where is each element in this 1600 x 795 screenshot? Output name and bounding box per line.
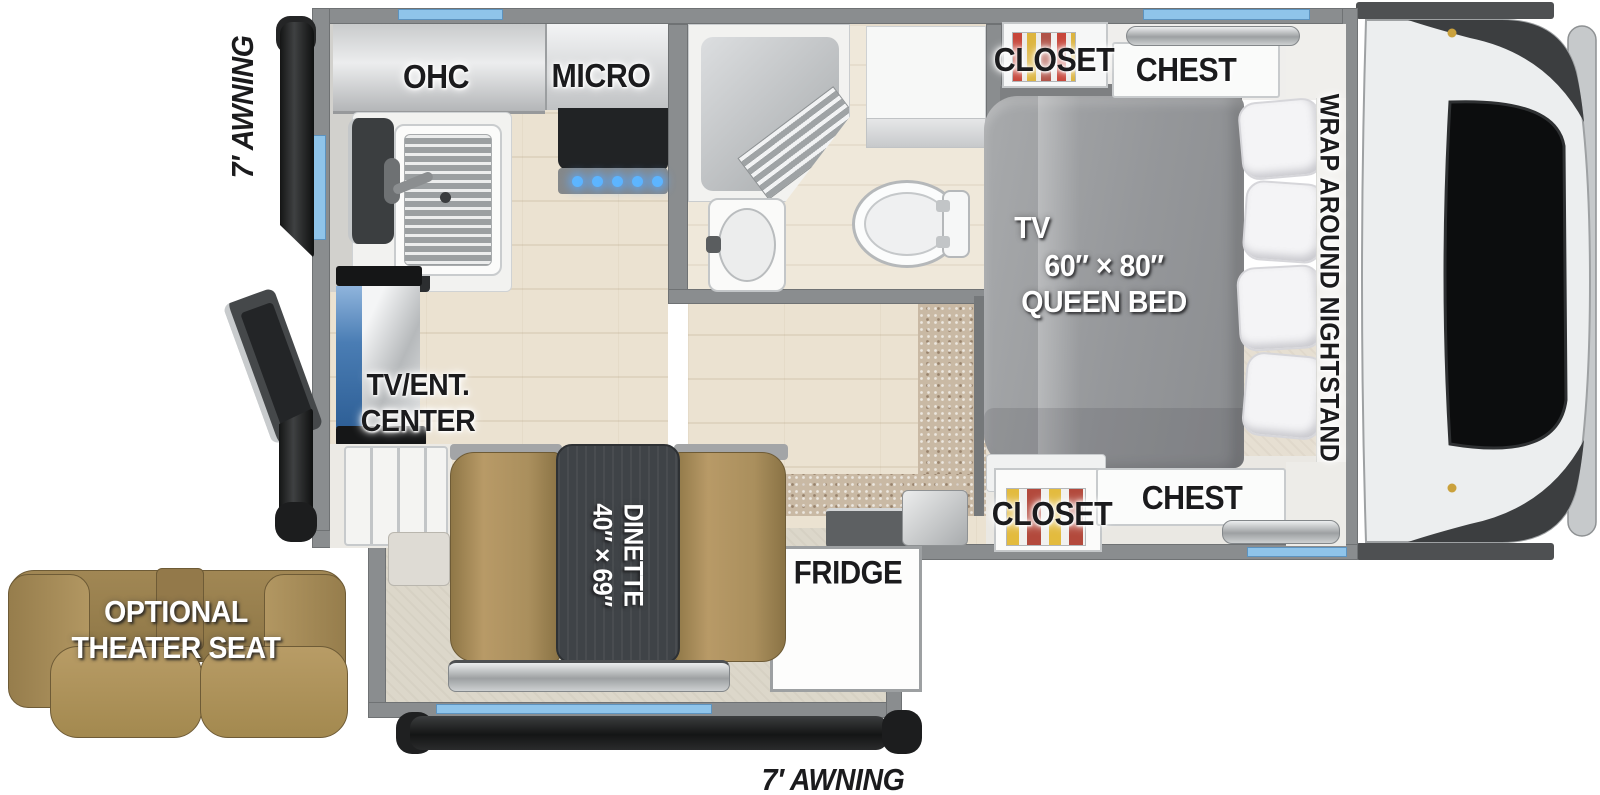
awning-bottom-label: 7′ AWNING	[762, 762, 905, 795]
awning-left-label: 7′ AWNING	[225, 36, 261, 179]
closet-bottom-label: CLOSET	[992, 495, 1112, 533]
dinette-step	[448, 660, 730, 692]
window-top-kitchen	[398, 9, 503, 20]
awning-left-roller-upper	[280, 22, 314, 258]
tv-ent-top-bar	[336, 266, 422, 286]
window-left-kitchen	[313, 135, 326, 240]
micro-label: MICRO	[552, 57, 651, 95]
queen-bed-label: 60″ × 80″ QUEEN BED	[1021, 248, 1186, 320]
sink-faucet	[384, 158, 400, 204]
truck-cab	[1352, 0, 1600, 562]
truck-bed-rail-top	[1356, 2, 1554, 19]
bathroom-cabinet	[866, 26, 986, 120]
chest-top-label: CHEST	[1136, 51, 1237, 89]
tv-ent-center-label: TV/ENT. CENTER	[361, 367, 475, 439]
bathroom-cabinet-front	[866, 118, 986, 148]
floorplan-canvas: 7′ AWNING OHC MICRO CLOSET CHEST WRAP AR…	[0, 0, 1600, 795]
entry-step-lower	[902, 490, 968, 546]
theater-line1: OPTIONAL	[72, 594, 281, 630]
grab-bar-top	[1126, 26, 1300, 46]
tv-ent-line1: TV/ENT.	[361, 367, 475, 403]
bathroom-sink-faucet	[706, 236, 721, 253]
grab-bar-bottom	[1222, 520, 1340, 544]
awning-bottom-cap-right	[882, 710, 922, 754]
wall-bath-left	[668, 24, 688, 304]
dinette-name: DINETTE	[617, 503, 648, 606]
awning-bottom-roller	[410, 716, 888, 750]
queen-bed-size: 60″ × 80″	[1021, 248, 1186, 284]
tv-ent-screen	[336, 286, 362, 428]
burner-light-2	[592, 176, 603, 187]
dinette-bench-left	[450, 452, 560, 662]
bed-platform-edge	[974, 296, 984, 516]
entry-door-glass	[436, 704, 712, 714]
bathroom-sink-basin	[718, 208, 776, 282]
theater-line2: THEATER SEAT	[72, 630, 281, 666]
closet-top-label: CLOSET	[994, 41, 1114, 79]
burner-light-1	[572, 176, 583, 187]
dinette-size: 40″ × 69″	[586, 503, 617, 606]
dinette-label: DINETTE 40″ × 69″	[586, 503, 649, 606]
sink-drain	[440, 192, 451, 203]
burner-light-5	[652, 176, 663, 187]
wall-left	[312, 8, 330, 548]
ohc-label: OHC	[403, 58, 469, 96]
awning-left-cap-bottom	[275, 502, 317, 542]
truck-windshield	[1445, 102, 1566, 448]
queen-bed-name: QUEEN BED	[1021, 284, 1186, 320]
theater-seat-label: OPTIONAL THEATER SEAT	[72, 594, 281, 666]
fridge-label: FRIDGE	[794, 555, 902, 592]
range-stove	[558, 108, 668, 170]
toilet-hinge-top	[936, 200, 950, 212]
chest-bottom-label: CHEST	[1142, 479, 1243, 517]
tv-cabinet-drawers	[344, 446, 448, 546]
truck-marker-light-top	[1448, 29, 1457, 38]
nightstand-label: WRAP AROUND NIGHTSTAND	[1314, 94, 1345, 462]
wall-dinette-left	[368, 528, 386, 718]
toilet-hinge-bottom	[936, 236, 950, 248]
truck-marker-light-bottom	[1448, 484, 1457, 493]
pillow-1	[1237, 97, 1325, 182]
bedroom-tv-label: TV	[1014, 210, 1050, 246]
truck-bed-rail-bottom	[1356, 543, 1554, 560]
window-top-bedroom	[1143, 9, 1310, 20]
burner-light-4	[632, 176, 643, 187]
tv-ent-line2: CENTER	[361, 403, 475, 439]
pillow-3	[1236, 264, 1324, 352]
entry-step-small	[388, 532, 450, 586]
window-bedroom-bottom	[1247, 547, 1347, 557]
dinette-bench-right	[674, 452, 786, 662]
burner-light-3	[612, 176, 623, 187]
